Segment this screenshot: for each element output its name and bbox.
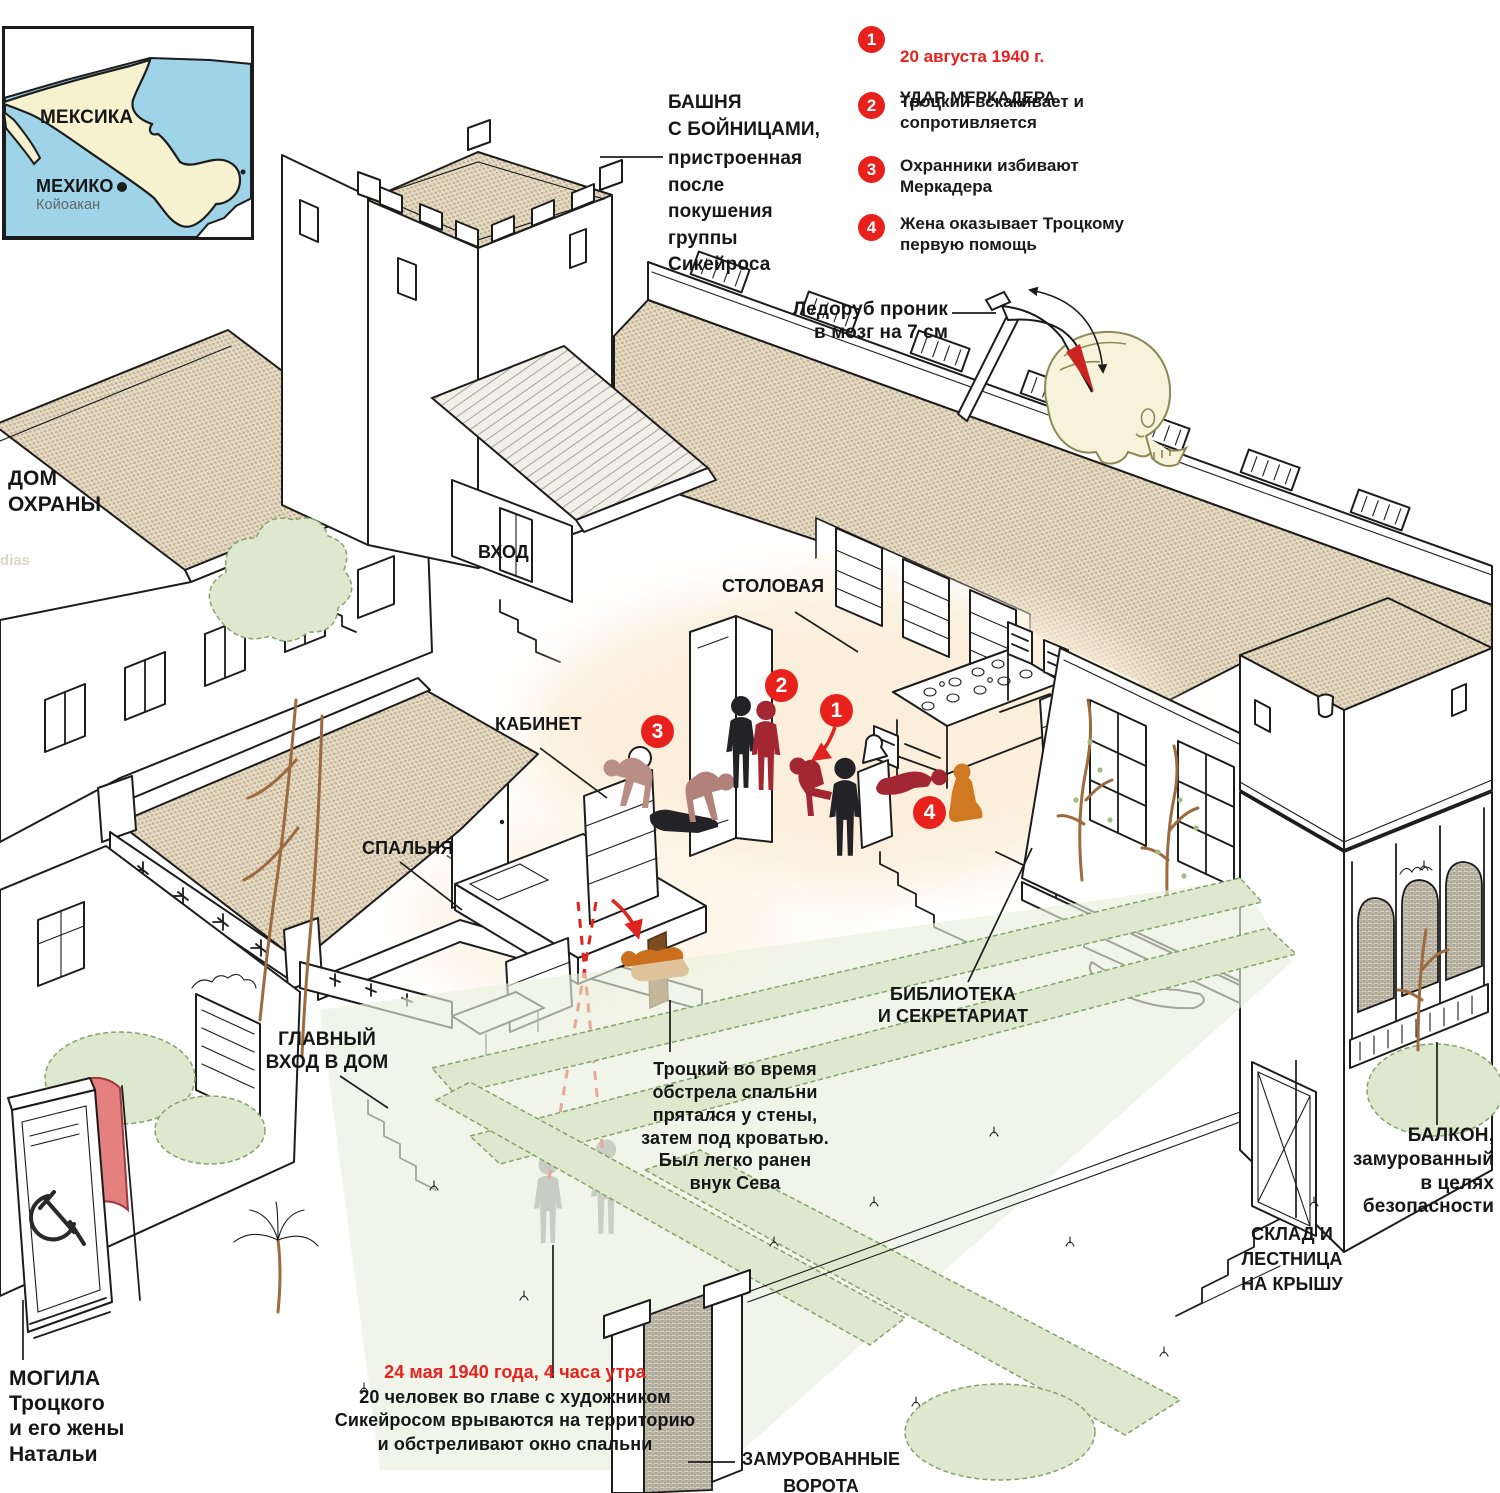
infographic-trotsky-house: dias МЕКСИКА МЕХИКО Койоакан БАШНЯ С БОЙ… (0, 0, 1500, 1493)
legend-item-3: 3 Охранники избивают Меркадера (858, 156, 1180, 197)
legend-marker-4: 4 (858, 214, 885, 241)
legend-item-2-text: Троцкий вскакивает и сопротивляется (900, 92, 1180, 133)
legend-item-2: 2 Троцкий вскакивает и сопротивляется (858, 92, 1180, 133)
watermark-fragment: dias (0, 552, 30, 569)
legend-marker-1: 1 (858, 26, 885, 53)
legend-item-4: 4 Жена оказывает Троцкому первую помощь (858, 214, 1180, 255)
legend-item-4-text: Жена оказывает Троцкому первую помощь (900, 214, 1180, 255)
house-illustration (0, 0, 1500, 1493)
side-door (1252, 1062, 1316, 1236)
city-dot (117, 182, 127, 192)
legend-marker-3: 3 (858, 156, 885, 183)
palm-tree (234, 1202, 318, 1312)
legend-item-1-date: 20 августа 1940 г. (900, 47, 1180, 68)
legend-item-3-text: Охранники избивают Меркадера (900, 156, 1180, 197)
mexico-map-inset (4, 28, 252, 238)
legend-marker-2: 2 (858, 92, 885, 119)
